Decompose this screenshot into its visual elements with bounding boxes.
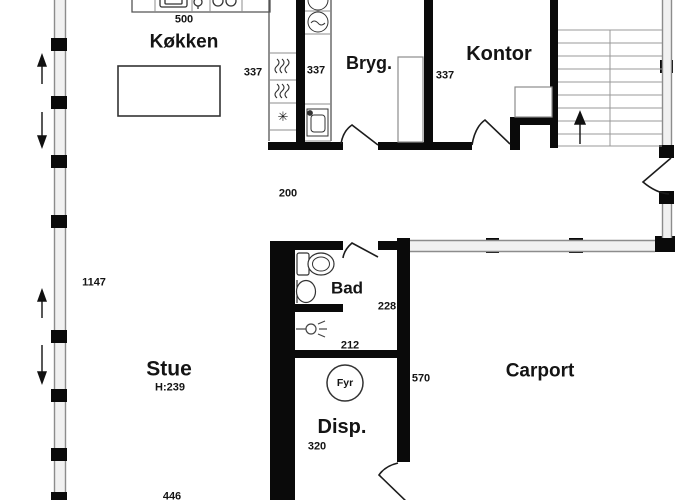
- washbasin-icon: [297, 280, 316, 303]
- window-wall-left: [51, 0, 67, 500]
- dim-kontor-depth: 337: [436, 71, 454, 82]
- slide-direction-arrows: [38, 55, 46, 383]
- window-wall-carport: [410, 241, 655, 252]
- washer-icon: [308, 0, 328, 10]
- dim-bryg-depth: 337: [307, 66, 325, 77]
- room-label-bryg: Bryg.: [346, 54, 392, 72]
- dryer-icon: [308, 12, 328, 32]
- room-label-carport: Carport: [506, 362, 575, 381]
- dim-stue-bottom: 446: [163, 492, 181, 500]
- dim-shower-width: 212: [341, 341, 359, 352]
- staircase: [558, 30, 662, 146]
- kontor-door: [472, 120, 510, 145]
- oven-icon: [160, 0, 187, 7]
- dim-kitchen-depth: 337: [244, 68, 262, 79]
- dim-disp-width: 320: [308, 442, 326, 453]
- sink-small-icon: [194, 0, 202, 9]
- kitchen-appliance-column: ✳: [269, 0, 296, 141]
- kitchen-counter: [132, 0, 270, 12]
- utility-sink-icon: [307, 109, 328, 136]
- snowflake-icon: ✳: [278, 109, 289, 124]
- dim-hall-width: 200: [279, 189, 297, 200]
- kontor-closet: [515, 87, 552, 117]
- disp-door: [379, 463, 409, 500]
- heat-waves-icon: [275, 59, 289, 73]
- bryg-door: [341, 125, 378, 145]
- boiler-label: Fyr: [337, 378, 353, 389]
- room-label-bad: Bad: [331, 280, 363, 297]
- room-label-stue: Stue: [146, 359, 192, 380]
- dim-bad-width: 228: [378, 302, 396, 313]
- bad-door: [343, 243, 378, 258]
- dim-kitchen-counter: 500: [175, 15, 193, 26]
- shower-icon: [296, 321, 327, 337]
- toilet-icon: [297, 253, 334, 275]
- entry-door: [643, 158, 671, 194]
- stairs-up-arrow: [575, 112, 585, 144]
- bryg-cabinet: [398, 57, 423, 142]
- room-label-kontor: Kontor: [466, 44, 532, 64]
- heat-waves-icon: [275, 84, 289, 98]
- stue-ceiling-height: H:239: [155, 383, 185, 394]
- dim-disp-side: 570: [412, 374, 430, 385]
- kitchen-island: [118, 66, 220, 116]
- cooktop-icon: [213, 0, 236, 6]
- floor-plan: ✳: [0, 0, 700, 500]
- room-label-disp: Disp.: [318, 417, 367, 437]
- room-label-kokken: Køkken: [150, 33, 219, 52]
- dim-stue-side: 1147: [82, 278, 106, 289]
